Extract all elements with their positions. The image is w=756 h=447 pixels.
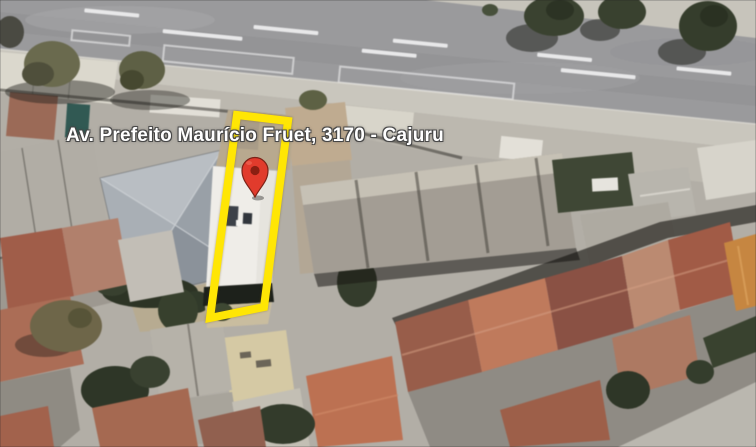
pin-dot	[250, 166, 259, 175]
satellite-map-view[interactable]: Av. Prefeito Maurício Fruet, 3170 - Caju…	[0, 0, 756, 447]
pin-shadow	[252, 196, 264, 201]
map-pin-layer	[0, 0, 756, 447]
location-pin-icon[interactable]	[242, 158, 268, 198]
address-label: Av. Prefeito Maurício Fruet, 3170 - Caju…	[66, 125, 444, 147]
pin-highlight	[246, 161, 252, 165]
